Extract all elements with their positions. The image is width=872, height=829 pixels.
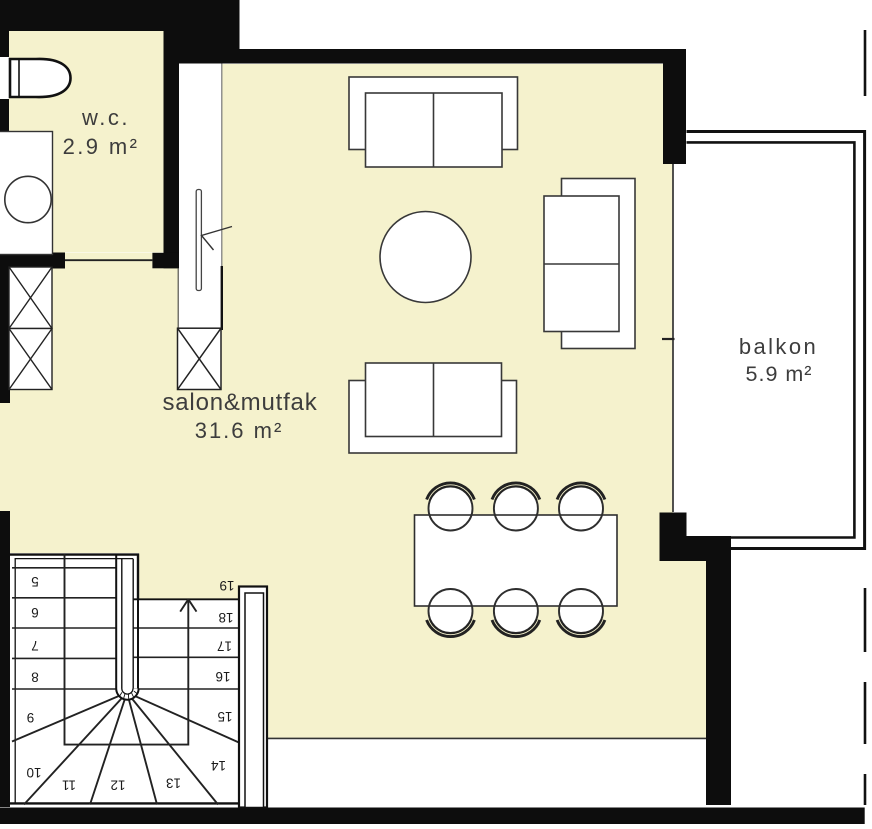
svg-text:16: 16 [215,669,230,684]
svg-text:9: 9 [27,710,35,725]
svg-text:2.9 m²: 2.9 m² [63,134,140,159]
svg-text:14: 14 [211,758,227,773]
svg-text:10: 10 [26,765,41,780]
svg-text:15: 15 [217,709,232,724]
svg-text:salon&mutfak: salon&mutfak [162,389,317,416]
svg-text:17: 17 [217,639,232,654]
svg-text:5.9 m²: 5.9 m² [746,362,813,386]
svg-text:w.c.: w.c. [81,105,130,130]
svg-text:31.6 m²: 31.6 m² [195,418,284,443]
svg-text:5: 5 [31,574,39,589]
svg-text:13: 13 [166,776,181,791]
svg-text:6: 6 [31,605,39,620]
svg-text:balkon: balkon [739,334,818,359]
svg-text:11: 11 [62,778,76,793]
svg-text:12: 12 [110,778,125,793]
svg-text:7: 7 [31,638,39,653]
svg-text:18: 18 [218,610,233,625]
svg-text:19: 19 [219,578,234,593]
svg-text:8: 8 [31,670,39,685]
